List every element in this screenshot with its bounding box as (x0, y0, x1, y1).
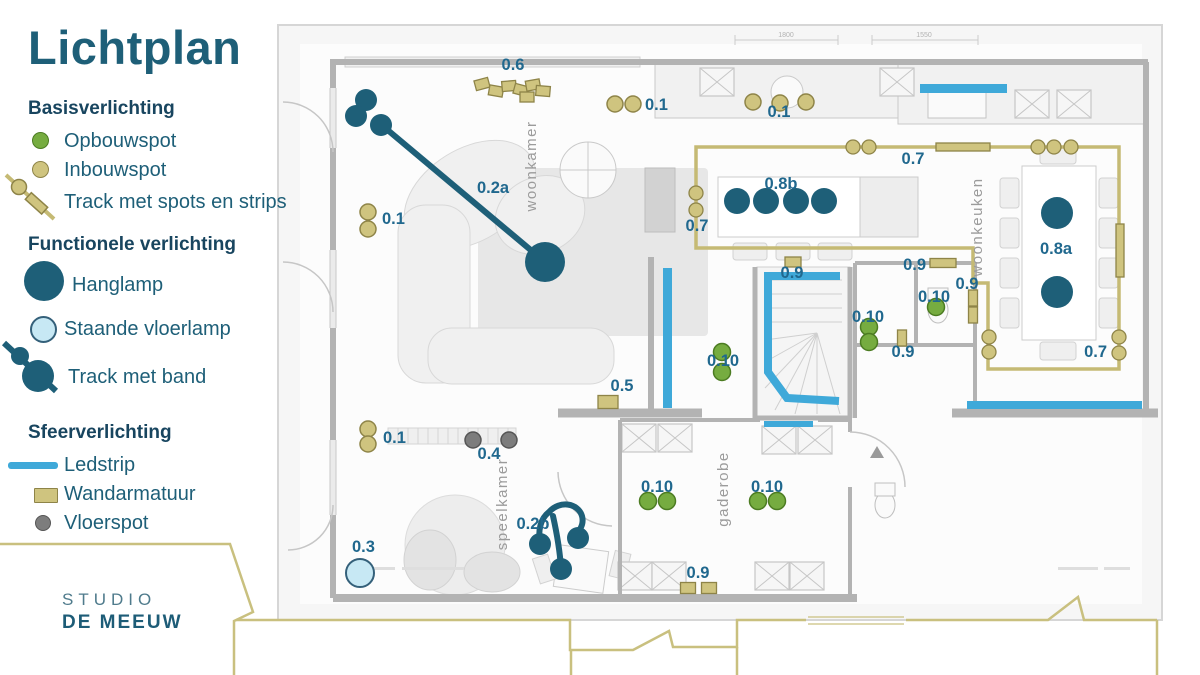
legend-item-inbouwspot: Inbouwspot (28, 156, 308, 183)
track-band-lamp (529, 533, 551, 555)
studio-logo: STUDIO DE MEEUW (62, 590, 183, 634)
ledstrip (967, 401, 1142, 409)
track-band-lamp (567, 527, 589, 549)
legend-item-label: Hanglamp (72, 274, 163, 296)
plan-label: 0.9 (903, 256, 926, 274)
page-title: Lichtplan (28, 20, 293, 75)
studio-logo-line2: DE MEEUW (62, 612, 183, 634)
room-label: woonkamer (523, 120, 540, 212)
legend-item-label: Track met band (68, 366, 206, 388)
vloerspot-icon (35, 515, 51, 531)
track-spot (1064, 140, 1078, 154)
wandarmatuur (702, 583, 717, 594)
track-band-lamp (525, 242, 565, 282)
plan-label: 0.6 (502, 56, 525, 74)
plan-label: 0.4 (478, 445, 502, 463)
legend-item-opbouwspot: Opbouwspot (28, 127, 308, 154)
room-label: gaderobe (715, 451, 732, 526)
inbouwspot (745, 94, 761, 110)
plan-label: 0.9 (687, 564, 710, 582)
ledstrip (764, 421, 813, 427)
plan-label: 0.8a (1040, 240, 1073, 258)
legend-item-track-spots: Track met spots en strips (28, 185, 308, 219)
wandarmatuur (598, 396, 618, 409)
track-strip (1116, 224, 1124, 277)
plan-label: 0.7 (902, 150, 925, 168)
track-band-lamp (550, 558, 572, 580)
legend-item-label: Wandarmatuur (64, 483, 196, 505)
hanglamp (1041, 197, 1073, 229)
track-spot (1047, 140, 1061, 154)
hanglamp (811, 188, 837, 214)
staande-vloerlamp (346, 559, 374, 587)
legend-item-label: Opbouwspot (64, 130, 176, 152)
legend-item-label: Inbouwspot (64, 159, 166, 181)
legend-heading: Sfeerverlichting (28, 422, 308, 444)
track-spots-icon (2, 169, 60, 225)
inbouwspot (360, 421, 376, 437)
wandarmatuur (536, 85, 551, 96)
wandarmatuur (969, 307, 978, 323)
opbouwspot-icon (32, 132, 49, 149)
plan-label: 0.1 (768, 103, 791, 121)
vloerspot (501, 432, 517, 448)
plan-label: 0.10 (751, 478, 783, 496)
wandarmatuur-icon (34, 488, 58, 503)
legend-heading: Functionele verlichting (28, 234, 308, 256)
inbouwspot (798, 94, 814, 110)
room-label: woonkeuken (969, 177, 986, 277)
plan-label: 0.1 (382, 210, 405, 228)
track-spot (1031, 140, 1045, 154)
track-spot (982, 345, 996, 359)
track-band-icon (0, 339, 62, 399)
plan-label: 0.2b (516, 515, 549, 533)
legend-item-ledstrip: Ledstrip (28, 451, 308, 478)
wandarmatuur (681, 583, 696, 594)
legend-item-label: Staande vloerlamp (64, 318, 231, 340)
plan-label: 0.7 (686, 217, 709, 235)
legend-item-hanglamp: Hanglamp (28, 263, 308, 307)
legend-item-label: Track met spots en strips (64, 191, 287, 213)
legend-item-track-band: Track met band (28, 351, 308, 403)
track-spot (689, 186, 703, 200)
plan-label: 0.7 (1084, 343, 1107, 361)
dimension-label: 1550 (916, 32, 932, 39)
plan-label: 0.10 (641, 478, 673, 496)
inbouwspot (360, 204, 376, 220)
inbouwspot (607, 96, 623, 112)
legend-item-label: Ledstrip (64, 454, 135, 476)
opbouwspot (861, 334, 878, 351)
track-strip (936, 143, 990, 151)
ledstrip-icon (8, 462, 58, 469)
track-spot (982, 330, 996, 344)
plan-label: 0.9 (892, 343, 915, 361)
track-band-lamp (345, 105, 367, 127)
dimension-label: 1800 (778, 32, 794, 39)
plan-label: 0.10 (707, 352, 739, 370)
track-spot (689, 203, 703, 217)
plan-label: 0.10 (852, 308, 884, 326)
ledstrip (663, 268, 672, 408)
plan-label: 0.8b (764, 175, 797, 193)
plan-label: 0.1 (383, 429, 406, 447)
wandarmatuur (930, 259, 956, 268)
legend-section-basis: Basisverlichting Opbouwspot Inbouwspot T… (28, 98, 308, 221)
studio-logo-line1: STUDIO (62, 590, 183, 610)
plan-label: 0.1 (645, 96, 668, 114)
plan-label: 0.5 (611, 377, 634, 395)
legend-item-wandarmatuur: Wandarmatuur (28, 480, 308, 507)
track-spot (1112, 346, 1126, 360)
inbouwspot (360, 221, 376, 237)
legend-item-vloerspot: Vloerspot (28, 509, 308, 536)
legend-section-functioneel: Functionele verlichting Hanglamp Staande… (28, 234, 308, 405)
track-spot (846, 140, 860, 154)
plan-label: 0.9 (781, 264, 804, 282)
legend: Lichtplan Basisverlichting Opbouwspot In… (28, 20, 293, 85)
hanglamp (724, 188, 750, 214)
hanglamp (1041, 276, 1073, 308)
legend-section-sfeer: Sfeerverlichting Ledstrip Wandarmatuur V… (28, 422, 308, 538)
inbouwspot (360, 436, 376, 452)
hanglamp-icon (24, 261, 64, 301)
track-spot (862, 140, 876, 154)
track-band-lamp (370, 114, 392, 136)
ledstrip (920, 84, 1007, 93)
track-spot (1112, 330, 1126, 344)
inbouwspot (625, 96, 641, 112)
room-label: speelkamer (494, 458, 511, 551)
plan-label: 0.10 (918, 288, 950, 306)
legend-heading: Basisverlichting (28, 98, 308, 120)
plan-label: 0.2a (477, 179, 510, 197)
plan-label: 0.3 (352, 538, 375, 556)
wandarmatuur (520, 92, 534, 102)
legend-item-label: Vloerspot (64, 512, 149, 534)
plan-label: 0.9 (956, 275, 979, 293)
legend-item-vloerlamp: Staande vloerlamp (28, 309, 308, 349)
